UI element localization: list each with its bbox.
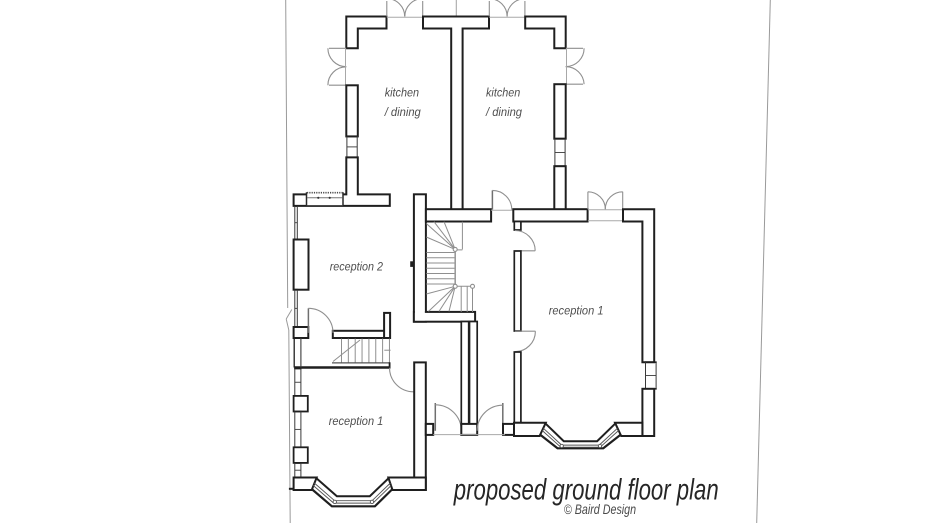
svg-text:reception 1: reception 1 (329, 414, 384, 428)
svg-text:/ dining: / dining (384, 105, 421, 119)
svg-text:/ dining: / dining (485, 105, 522, 119)
svg-text:© Baird Design: © Baird Design (564, 501, 636, 517)
svg-text:reception 2: reception 2 (330, 260, 384, 274)
svg-text:reception 1: reception 1 (549, 303, 604, 317)
svg-text:kitchen: kitchen (385, 86, 420, 100)
svg-text:kitchen: kitchen (486, 86, 521, 100)
